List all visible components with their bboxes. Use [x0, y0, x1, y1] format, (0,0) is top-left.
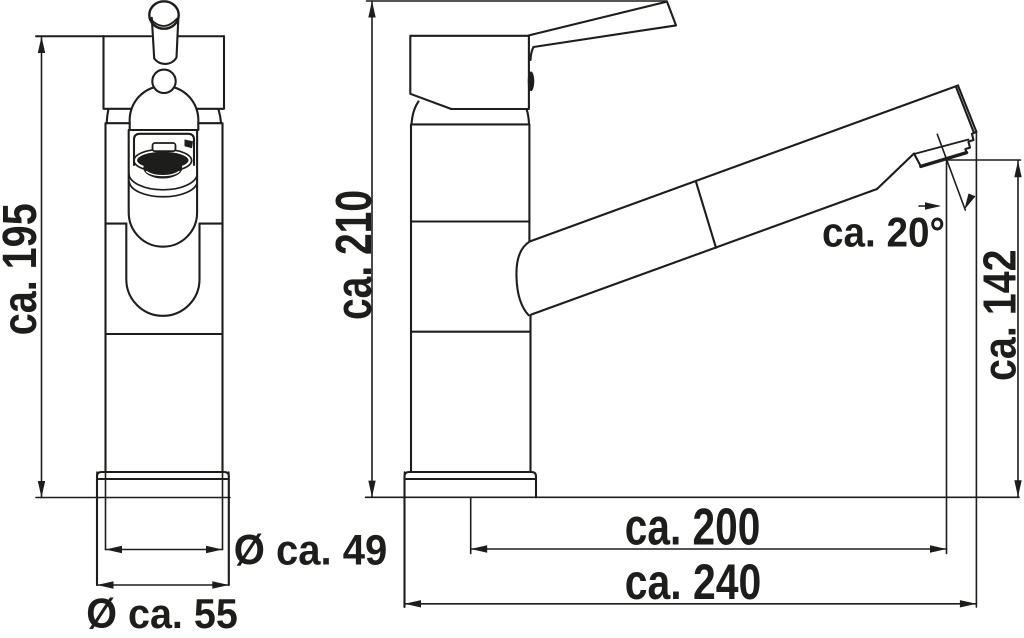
svg-text:ca. 195: ca. 195 — [0, 203, 47, 335]
svg-text:ca. 20°: ca. 20° — [822, 208, 945, 255]
svg-text:ca. 142: ca. 142 — [974, 250, 1024, 382]
svg-text:ca. 200: ca. 200 — [625, 498, 761, 556]
svg-text:ca. 240: ca. 240 — [625, 553, 762, 610]
svg-text:Ø ca. 49: Ø ca. 49 — [234, 527, 387, 575]
svg-text:ca. 210: ca. 210 — [325, 190, 382, 320]
svg-text:Ø ca. 55: Ø ca. 55 — [86, 590, 238, 637]
